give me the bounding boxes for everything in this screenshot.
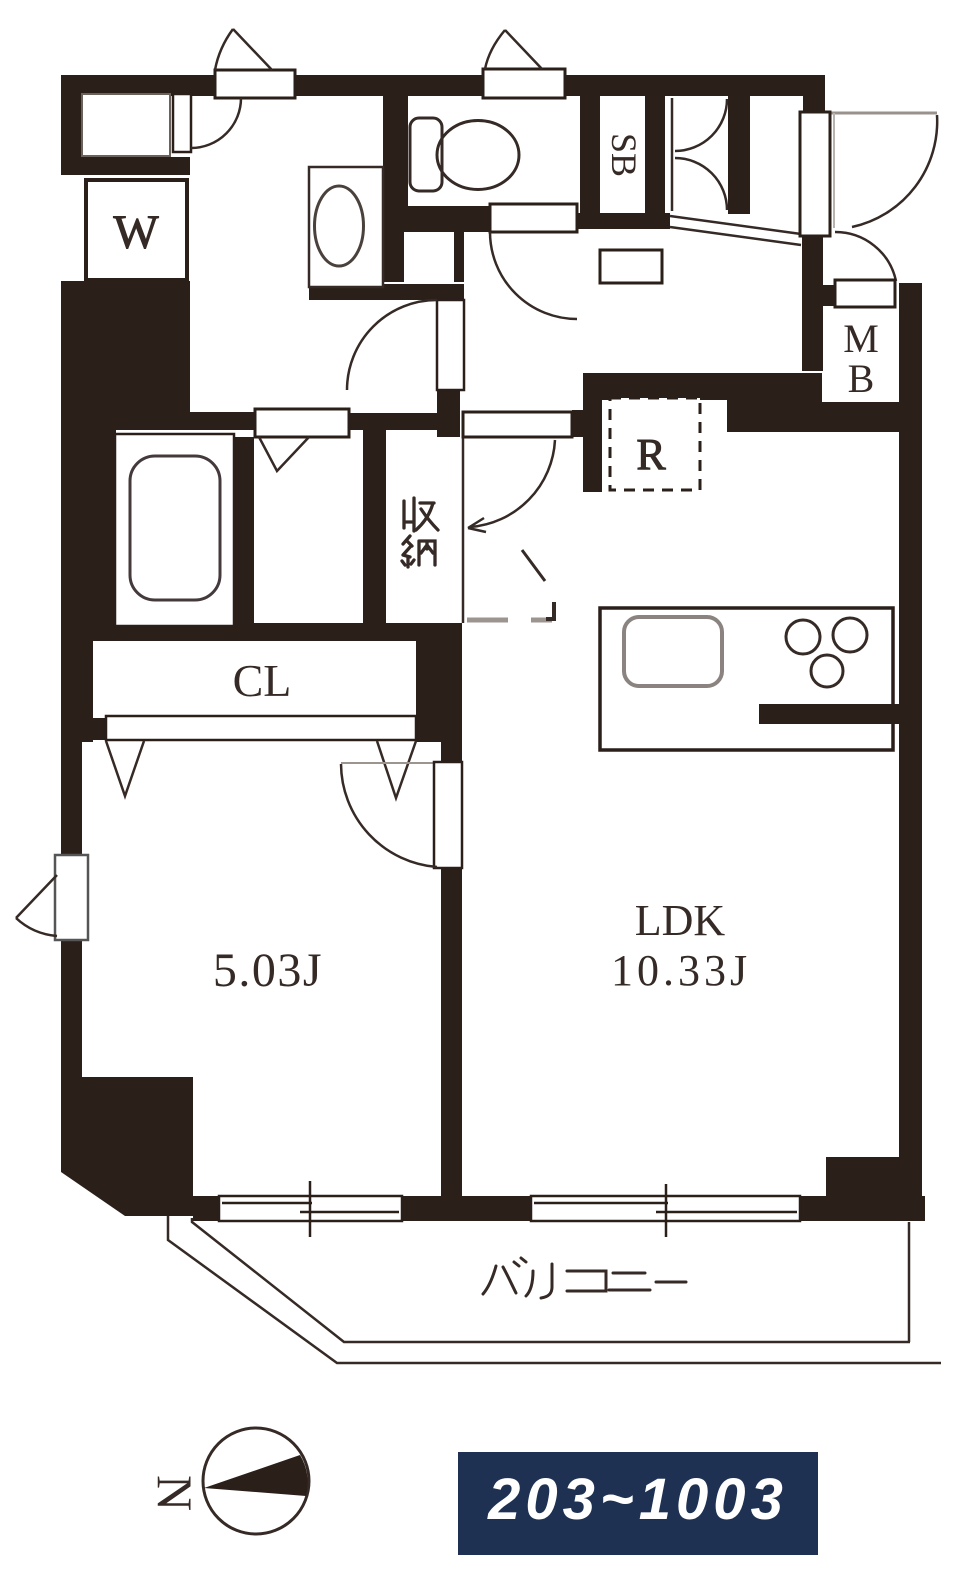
svg-text:CL: CL [233,655,292,706]
svg-text:W: W [113,206,159,259]
svg-text:R: R [636,430,666,479]
svg-text:5.03J: 5.03J [213,944,323,997]
svg-text:B: B [848,356,875,401]
svg-text:M: M [843,316,879,361]
svg-text:10.33J: 10.33J [611,946,751,995]
svg-text:LDK: LDK [635,896,726,945]
svg-text:203~1003: 203~1003 [487,1467,788,1532]
svg-text:SB: SB [604,133,644,177]
svg-text:N: N [147,1475,203,1511]
